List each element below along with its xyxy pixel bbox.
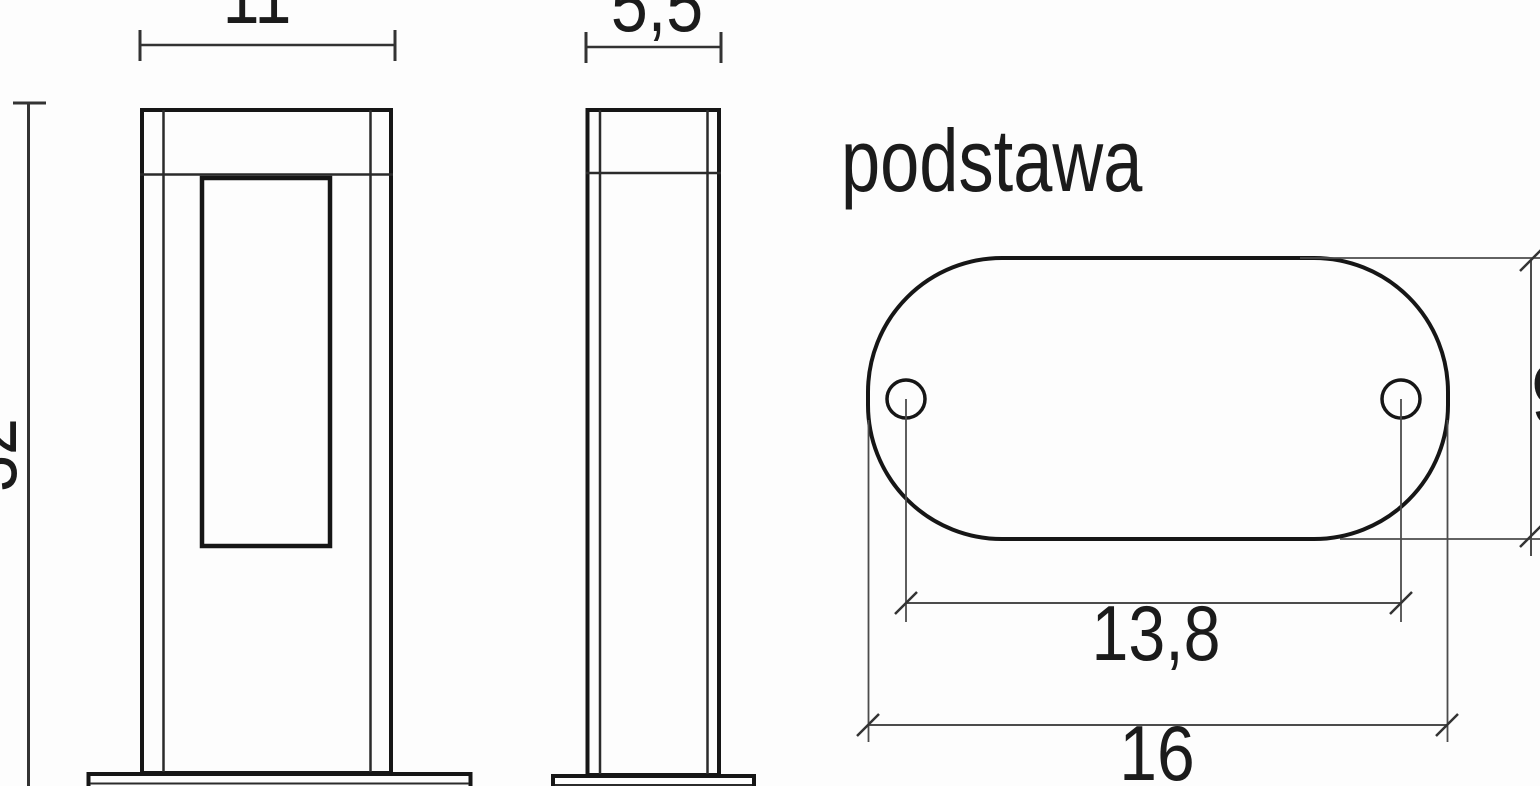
side-view [553, 110, 754, 786]
base-plate-outline [868, 258, 1448, 539]
front-view [89, 110, 471, 786]
front-outer-outline [142, 110, 391, 773]
dim-label-front-width: 11 [187, 0, 326, 35]
dimension-lines [13, 30, 1540, 786]
dim-label-height: 32 [0, 387, 29, 523]
front-window-outline [202, 178, 330, 546]
dim-label-base-length: 16 [1070, 714, 1244, 786]
dim-label-side-depth: 5,5 [572, 0, 742, 43]
base-plate-view [868, 258, 1448, 539]
dim-label-base-depth: 9 [1531, 352, 1540, 436]
dim-label-hole-spacing: 13,8 [1063, 594, 1250, 672]
technical-drawing-page: 11 5,5 podstawa 13,8 16 32 9 [0, 0, 1540, 786]
side-outer-outline [588, 110, 720, 775]
drawing-linework [0, 0, 1540, 786]
base-plate-title: podstawa [841, 117, 1142, 205]
